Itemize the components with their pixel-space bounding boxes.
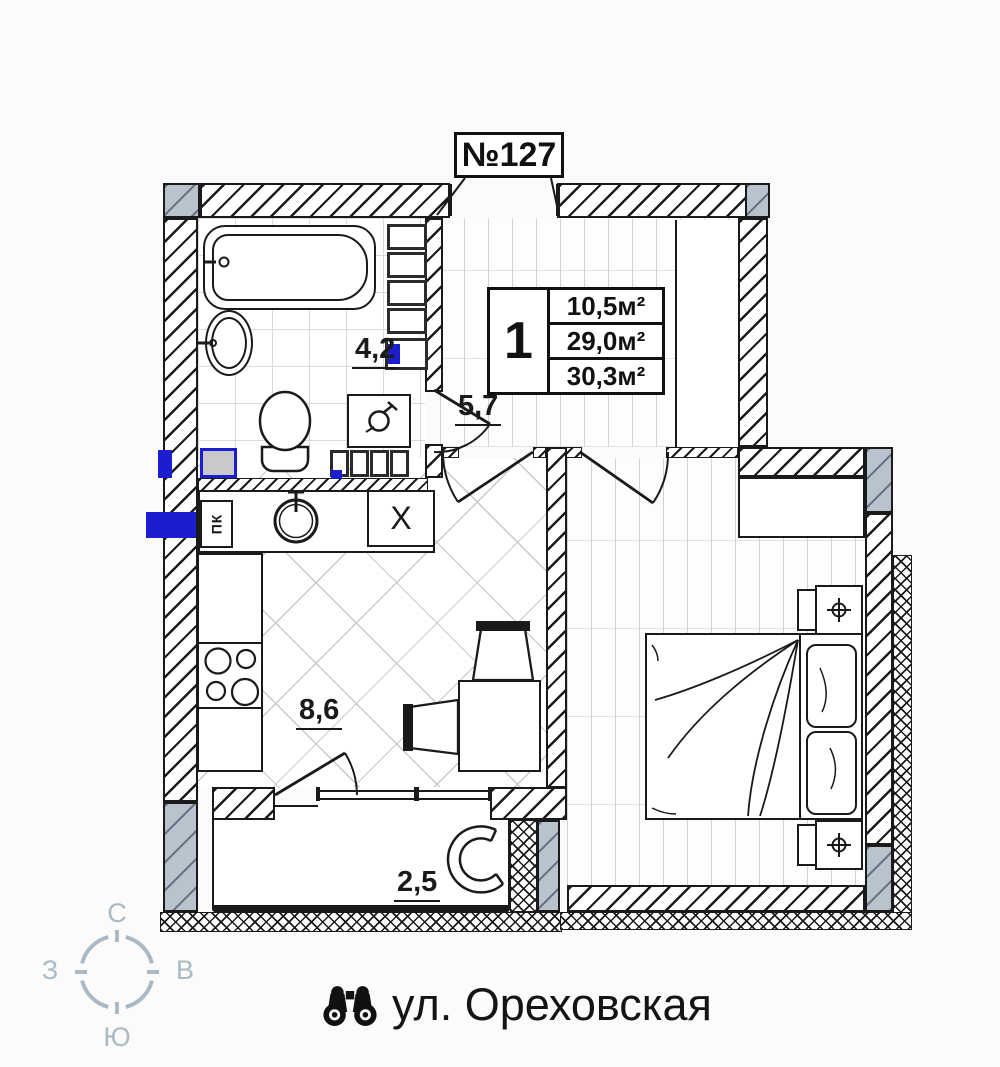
toilet-icon (260, 392, 310, 471)
area-living: 10,5м² (550, 290, 662, 325)
bed-details (652, 635, 835, 818)
chair-icon (403, 700, 458, 754)
balcony-area-label: 2,5 (394, 868, 440, 902)
unit-number-box: №127 (454, 132, 564, 178)
compass-north: С (100, 898, 134, 929)
area-overall: 30,3м² (550, 360, 662, 392)
washer-valve-icon (366, 402, 397, 432)
kitchen-door (443, 452, 533, 502)
compass-west: З (33, 955, 67, 986)
compass-circle (67, 922, 167, 1022)
stove-burners (206, 649, 259, 706)
street-address: ул. Ореховская (322, 976, 712, 1034)
entry-door (437, 178, 560, 216)
armchair-icon (448, 826, 503, 892)
compass-east: В (168, 955, 202, 986)
area-total: 29,0м² (550, 325, 662, 360)
room-count: 1 (490, 290, 550, 392)
kitchen-area-label: 8,6 (296, 696, 342, 730)
apartment-info-box: 1 10,5м² 29,0м² 30,3м² (487, 287, 665, 395)
bathroom-area-label: 4,2 (352, 335, 398, 369)
binoculars-icon (322, 982, 378, 1028)
chair-icon (473, 621, 533, 680)
bedroom-door (580, 452, 668, 503)
kitchen-sink-icon (275, 492, 317, 542)
faucet-icon (196, 258, 229, 347)
balcony-window-lines (316, 787, 492, 801)
nightstand-glyph (827, 598, 851, 857)
floor-plan: ПК X (0, 0, 1000, 1067)
area-list: 10,5м² 29,0м² 30,3м² (550, 290, 662, 392)
hallway-area-label: 5,7 (455, 392, 501, 426)
unit-number: №127 (462, 136, 557, 175)
compass-south: Ю (100, 1022, 134, 1053)
street-name: ул. Ореховская (392, 979, 712, 1031)
